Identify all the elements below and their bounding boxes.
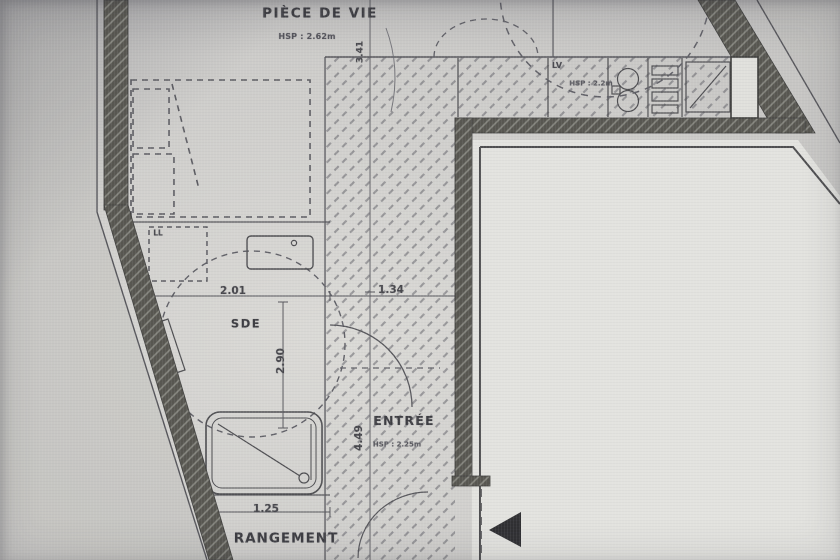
wall-cap-entry <box>452 476 490 486</box>
dimension-line-sde-depth <box>278 302 288 428</box>
nightstand-top <box>133 89 169 148</box>
washing-machine-outline <box>149 227 207 281</box>
wall-corridor-right <box>455 118 472 478</box>
bed-outline <box>131 80 310 217</box>
wall-niche <box>731 57 758 118</box>
wall-kitchen-bottom <box>455 118 805 133</box>
dimension-line-rangement <box>212 507 330 517</box>
bed-fold-line <box>172 84 199 189</box>
floor-plan-drawing <box>0 0 840 560</box>
outside-left-area <box>0 0 207 560</box>
floor-plan-photo: PIÈCE DE VIE HSP : 2.62m 3.41 LV HSP : 2… <box>0 0 840 560</box>
nightstand-bottom <box>133 154 174 214</box>
wall-left <box>104 0 128 210</box>
kitchen-hatch-zone <box>455 57 745 118</box>
shower-drain <box>299 473 309 483</box>
washbasin <box>247 236 313 269</box>
landing-area <box>472 140 840 560</box>
dashed-arc-living <box>434 19 538 57</box>
shower-tray <box>206 412 322 494</box>
entry-corridor-hatch-zone <box>325 57 455 560</box>
plan-drawing-layer <box>0 0 840 560</box>
